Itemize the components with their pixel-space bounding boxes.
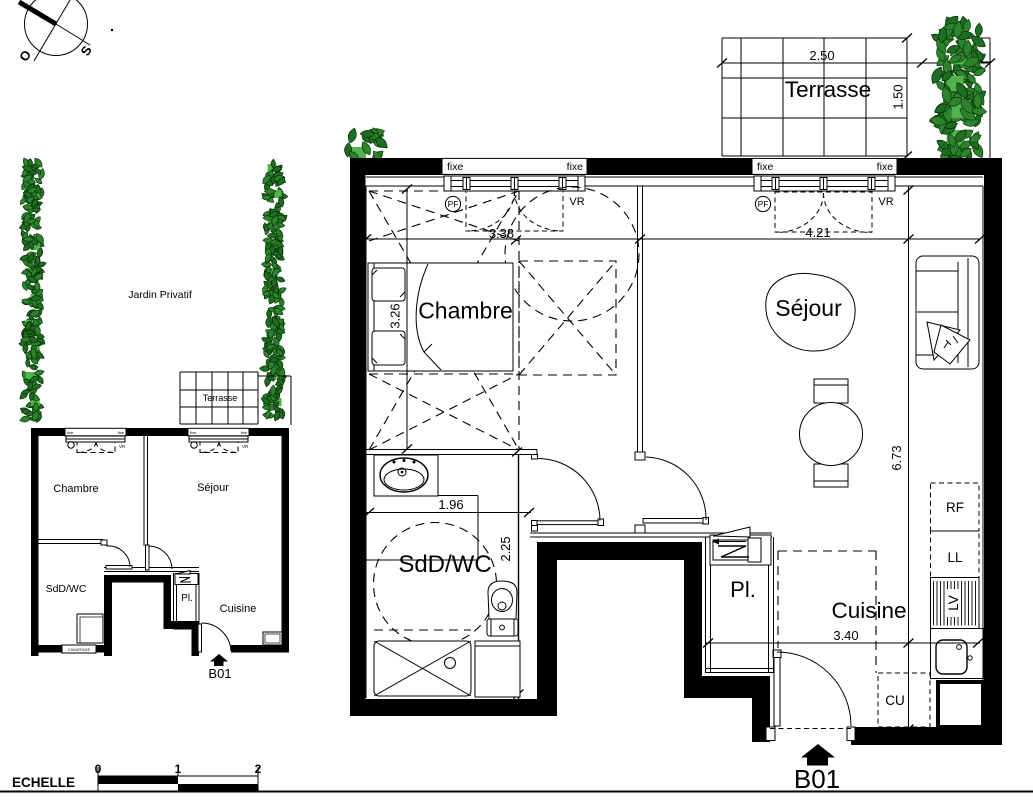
svg-text:B01: B01 — [208, 666, 231, 681]
svg-text:4.21: 4.21 — [805, 225, 830, 240]
svg-text:1.96: 1.96 — [438, 497, 463, 512]
svg-text:fixe: fixe — [757, 161, 774, 173]
svg-text:SdD/WC: SdD/WC — [46, 583, 87, 595]
svg-text:fixe: fixe — [118, 430, 125, 435]
svg-text:2.25: 2.25 — [498, 536, 513, 561]
svg-text:3.38: 3.38 — [489, 226, 514, 241]
svg-text:Chambre: Chambre — [53, 483, 98, 495]
svg-text:fixe: fixe — [67, 430, 74, 435]
svg-text:fixe: fixe — [447, 161, 464, 173]
svg-text:LV: LV — [946, 595, 961, 611]
svg-text:SdD/WC: SdD/WC — [398, 551, 491, 578]
svg-text:VR: VR — [242, 444, 249, 449]
svg-text:Cuisine: Cuisine — [220, 603, 257, 615]
svg-text:B01: B01 — [794, 764, 840, 794]
svg-text:RF: RF — [946, 500, 964, 515]
svg-text:6.73: 6.73 — [889, 445, 904, 470]
svg-text:Séjour: Séjour — [197, 482, 229, 494]
svg-text:fixe: fixe — [567, 161, 584, 173]
svg-text:fixe: fixe — [190, 430, 197, 435]
svg-text:PF: PF — [758, 199, 769, 209]
svg-text:1.50: 1.50 — [891, 84, 906, 109]
svg-text:PF: PF — [448, 199, 459, 209]
svg-text:fixe: fixe — [241, 430, 248, 435]
svg-text:Terrasse: Terrasse — [203, 393, 238, 403]
svg-text:3.40: 3.40 — [833, 628, 858, 643]
svg-text:CHAUFFAGE: CHAUFFAGE — [68, 648, 91, 652]
svg-text:3.26: 3.26 — [388, 303, 403, 328]
svg-text:VR: VR — [119, 444, 126, 449]
svg-text:Chambre: Chambre — [418, 298, 513, 324]
svg-text:Cuisine: Cuisine — [831, 598, 906, 623]
svg-text:ECHELLE: ECHELLE — [12, 775, 75, 790]
svg-text:fixe: fixe — [877, 161, 894, 173]
svg-text:2.50: 2.50 — [809, 48, 834, 63]
svg-text:VR: VR — [569, 196, 584, 208]
svg-text:Pl.: Pl. — [730, 577, 756, 602]
svg-text:Jardin Privatif: Jardin Privatif — [128, 289, 192, 301]
svg-text:Séjour: Séjour — [775, 295, 842, 321]
svg-text:VR: VR — [878, 196, 893, 208]
svg-text:Pl.: Pl. — [181, 593, 193, 604]
svg-text:LL: LL — [947, 550, 963, 565]
svg-text:Terrasse: Terrasse — [785, 77, 871, 102]
svg-text:CU: CU — [885, 693, 905, 708]
